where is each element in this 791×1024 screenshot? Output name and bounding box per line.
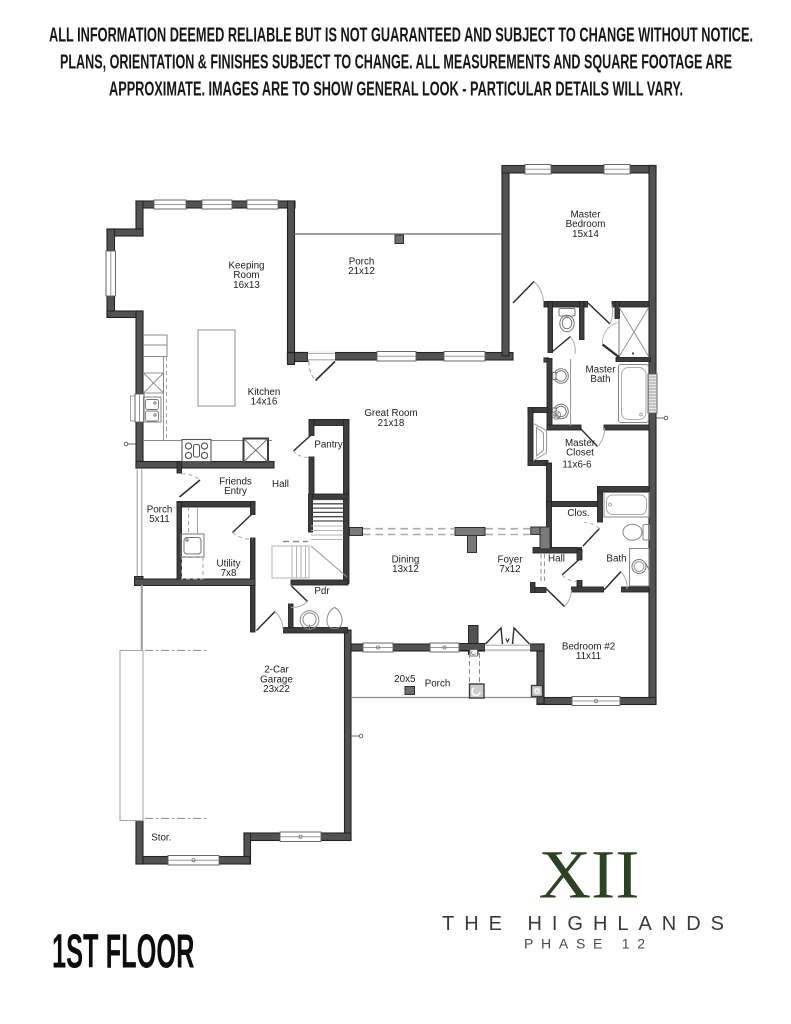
svg-text:11x11: 11x11 bbox=[576, 651, 601, 662]
svg-text:Pdr: Pdr bbox=[314, 586, 330, 597]
svg-text:Bath: Bath bbox=[590, 374, 610, 385]
svg-text:7x12: 7x12 bbox=[499, 564, 520, 575]
svg-text:XII: XII bbox=[539, 837, 640, 913]
svg-text:20x5: 20x5 bbox=[394, 674, 416, 685]
svg-text:Hall: Hall bbox=[272, 479, 289, 490]
svg-text:1ST FLOOR: 1ST FLOOR bbox=[52, 926, 195, 979]
svg-text:Porch: Porch bbox=[425, 678, 451, 689]
svg-text:Pantry: Pantry bbox=[314, 440, 342, 451]
svg-text:Clos.: Clos. bbox=[567, 508, 589, 519]
svg-text:ALL INFORMATION DEEMED RELIABL: ALL INFORMATION DEEMED RELIABLE BUT IS N… bbox=[49, 25, 753, 47]
svg-text:Stor.: Stor. bbox=[151, 833, 171, 844]
svg-text:Hall: Hall bbox=[548, 554, 565, 565]
svg-text:PLANS, ORIENTATION & FINISHES: PLANS, ORIENTATION & FINISHES SUBJECT TO… bbox=[60, 52, 732, 74]
svg-text:16x13: 16x13 bbox=[233, 280, 260, 291]
svg-text:Entry: Entry bbox=[224, 486, 247, 497]
svg-text:Closet: Closet bbox=[566, 448, 594, 459]
svg-text:APPROXIMATE. IMAGES ARE TO SHO: APPROXIMATE. IMAGES ARE TO SHOW GENERAL … bbox=[109, 79, 683, 101]
svg-text:Bath: Bath bbox=[606, 554, 626, 565]
svg-text:14x16: 14x16 bbox=[251, 397, 278, 408]
svg-text:23x22: 23x22 bbox=[263, 684, 290, 695]
svg-text:7x8: 7x8 bbox=[221, 568, 237, 579]
svg-text:PHASE 12: PHASE 12 bbox=[524, 936, 645, 952]
svg-text:13x12: 13x12 bbox=[392, 564, 419, 575]
svg-text:15x14: 15x14 bbox=[572, 229, 599, 240]
svg-text:11x6-6: 11x6-6 bbox=[562, 460, 592, 471]
svg-text:21x18: 21x18 bbox=[378, 418, 405, 429]
svg-text:5x11: 5x11 bbox=[149, 514, 170, 525]
svg-text:21x12: 21x12 bbox=[348, 266, 375, 277]
